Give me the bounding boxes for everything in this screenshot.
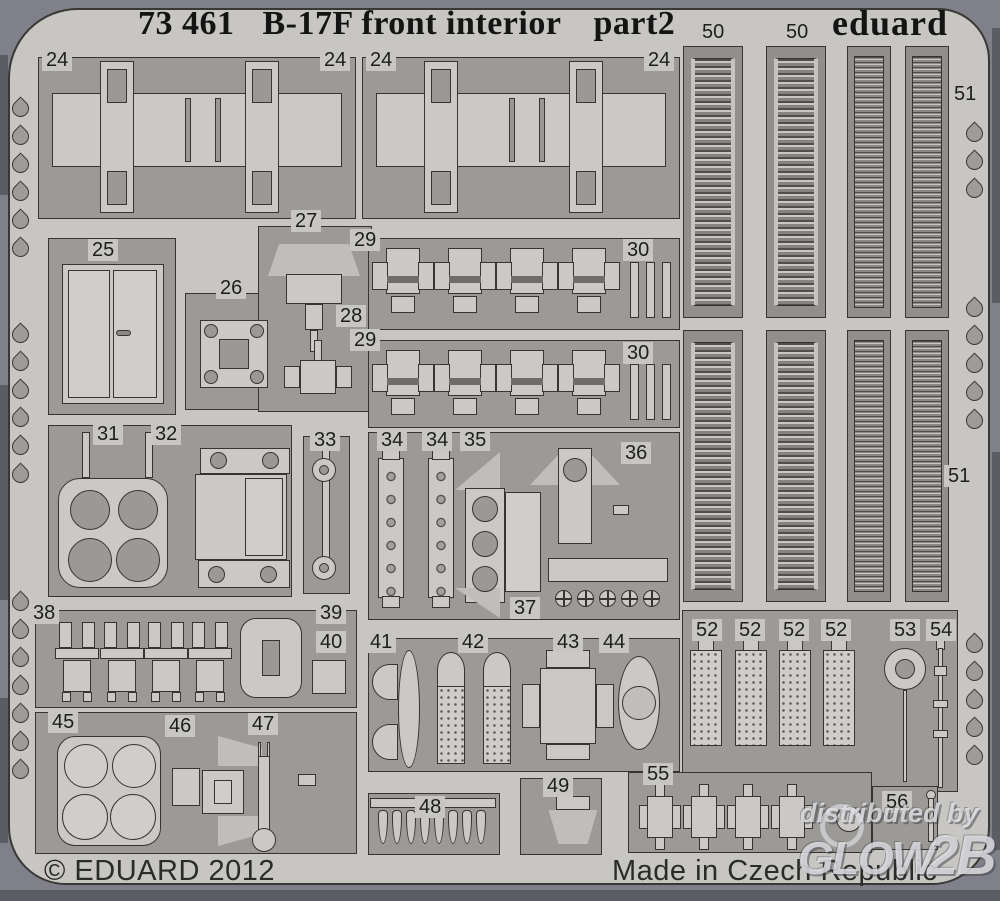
part-label-50: 50: [698, 21, 728, 43]
part-55-bracket: [639, 784, 681, 850]
part-shape: [83, 692, 92, 702]
part-26-corner-hole: [250, 370, 264, 384]
part-30-strip: [662, 364, 671, 420]
part-label-31: 31: [93, 423, 123, 445]
part-label-52: 52: [821, 619, 851, 641]
part-shape: [448, 350, 482, 396]
part-24-buckle-hole: [576, 69, 596, 103]
part-31-hook: [82, 432, 90, 478]
teardrop-cutout: [962, 121, 986, 145]
part-39-slot: [262, 640, 280, 676]
part-label-30: 30: [623, 342, 653, 364]
part-55-bracket: [683, 784, 725, 850]
part-label-40: 40: [316, 631, 346, 653]
part-shape: [434, 262, 450, 290]
part-shape: [716, 805, 725, 829]
scan-edge-bar: [992, 645, 1000, 850]
part-shape: [727, 805, 736, 829]
part-52-walkway: [779, 650, 811, 746]
part-label-43: 43: [553, 631, 583, 653]
part-42-bottle: [437, 686, 465, 764]
part-shape: [743, 837, 753, 850]
teardrop-cutouts-right-3: [966, 636, 983, 765]
part-45-hole: [110, 794, 156, 840]
part-label-32: 32: [151, 423, 181, 445]
teardrop-cutouts-left-1: [12, 100, 29, 257]
part-34-strip: [428, 458, 454, 598]
part-label-26: 26: [216, 277, 246, 299]
teardrop-cutout: [962, 149, 986, 173]
part-shape: [453, 398, 477, 415]
part-shape: [604, 364, 620, 392]
part-label-39: 39: [316, 602, 346, 624]
part-label-24: 24: [644, 49, 674, 71]
teardrop-cutout: [8, 208, 32, 232]
part-29-seat: [372, 350, 434, 422]
part-31-hole: [68, 538, 112, 582]
part-37-knob: [643, 590, 660, 607]
part-31-hole: [116, 538, 160, 582]
part-55-bracket: [727, 784, 769, 850]
teardrop-cutout: [962, 744, 986, 768]
part-50-belt: [774, 58, 818, 306]
part-33-ring-hole: [319, 465, 329, 475]
part-24-buckle-hole: [107, 171, 127, 205]
teardrop-cutout: [962, 296, 986, 320]
part-shape: [573, 378, 605, 385]
part-label-24: 24: [320, 49, 350, 71]
part-shape: [418, 262, 434, 290]
part-shape: [577, 296, 601, 313]
part-label-29: 29: [350, 329, 380, 351]
teardrop-cutouts-left-3: [12, 594, 29, 779]
part-label-46: 46: [165, 715, 195, 737]
part-24-buckle-hole: [431, 69, 451, 103]
part-37-knob: [577, 590, 594, 607]
part-label-24: 24: [42, 49, 72, 71]
part-label-47: 47: [248, 713, 278, 735]
part-label-33: 33: [310, 429, 340, 451]
teardrop-cutout: [8, 96, 32, 120]
part-label-54: 54: [926, 619, 956, 641]
part-29-seat: [434, 350, 496, 422]
part-25-door-handle: [116, 330, 131, 336]
part-label-45: 45: [48, 711, 78, 733]
part-shape: [391, 296, 415, 313]
teardrop-cutout: [8, 674, 32, 698]
part-shape: [216, 692, 225, 702]
part-shape: [148, 622, 161, 648]
part-52-walkway: [690, 650, 722, 746]
part-35-hole: [472, 566, 498, 592]
part-42-bottle-top: [483, 652, 511, 688]
part-shape: [699, 837, 709, 850]
part-shape: [386, 248, 420, 294]
part-shape: [771, 805, 780, 829]
part-shape: [572, 248, 606, 294]
part-42-bottle: [483, 686, 511, 764]
part-26-corner-hole: [250, 324, 264, 338]
part-label-27: 27: [291, 210, 321, 232]
part-30-strip: [662, 262, 671, 318]
scan-edge-bar: [992, 28, 1000, 303]
part-shape: [100, 648, 144, 659]
part-shape: [639, 805, 648, 829]
part-24-buckle-hole: [252, 69, 272, 103]
part-shape: [496, 262, 512, 290]
part-30-strip: [630, 364, 639, 420]
part-label-44: 44: [599, 631, 629, 653]
teardrop-cutouts-right-2: [966, 300, 983, 429]
teardrop-cutout: [8, 462, 32, 486]
part-shape: [604, 262, 620, 290]
part-24-buckle-hole: [431, 171, 451, 205]
part-shape: [59, 622, 72, 648]
part-32-clamp-hole: [260, 566, 277, 583]
part-shape: [387, 276, 419, 283]
photoetch-sheet-scan: 73 461B-17F front interiorpart2 eduard ©…: [0, 0, 1000, 901]
part-shape: [63, 660, 91, 692]
part-28-body: [300, 360, 336, 394]
teardrop-cutouts-left-2: [12, 326, 29, 483]
part-shape: [172, 692, 181, 702]
part-45-hole: [112, 744, 156, 788]
part-shape: [192, 622, 205, 648]
part-label-52: 52: [779, 619, 809, 641]
teardrop-cutout: [962, 380, 986, 404]
part-shape: [372, 364, 388, 392]
part-shape: [511, 378, 543, 385]
part-51-belt: [912, 340, 942, 592]
part-shape: [572, 350, 606, 396]
part-52-walkway: [735, 650, 767, 746]
part-shape: [391, 398, 415, 415]
part-shape: [62, 692, 71, 702]
part-label-34: 34: [422, 429, 452, 451]
part-28-stem: [314, 340, 322, 362]
part-24-slit: [539, 98, 545, 162]
part-label-55: 55: [643, 763, 673, 785]
teardrop-cutout: [962, 177, 986, 201]
scan-edge-bar: [0, 698, 8, 843]
part-label-28: 28: [336, 305, 366, 327]
part-label-36: 36: [621, 442, 651, 464]
part-44-hole: [622, 686, 656, 720]
part-43-flap: [546, 744, 590, 760]
part-label-51: 51: [950, 83, 980, 105]
part-29-seat: [496, 350, 558, 422]
part-43-body: [540, 668, 596, 744]
part-28-side: [284, 366, 300, 388]
part-36-fitting: [613, 505, 629, 515]
part-shape: [672, 805, 681, 829]
teardrop-cutout: [8, 646, 32, 670]
part-29-seat: [558, 248, 620, 320]
part-shape: [510, 248, 544, 294]
sheet-title: 73 461B-17F front interiorpart2: [138, 5, 675, 43]
teardrop-cutout: [8, 730, 32, 754]
part-shape: [171, 622, 184, 648]
teardrop-cutout: [8, 350, 32, 374]
part-24-slit: [215, 98, 221, 162]
part-43-flap: [596, 684, 614, 728]
part-25-door-leaf: [68, 270, 110, 398]
part-37-knob: [599, 590, 616, 607]
part-shape: [127, 622, 140, 648]
part-24-buckle-hole: [576, 171, 596, 205]
part-38-harness: [144, 620, 188, 704]
part-label-41: 41: [366, 631, 396, 653]
part-24-buckle-hole: [107, 69, 127, 103]
part-shape: [691, 796, 717, 838]
part-shape: [144, 648, 188, 659]
part-54-fitting: [933, 700, 948, 708]
part-56-pin: [928, 798, 934, 842]
part-51-belt: [912, 56, 942, 308]
part-54-fitting: [933, 730, 948, 738]
part-24-buckle-hole: [252, 171, 272, 205]
part-53-stem: [903, 690, 907, 782]
part-label-29: 29: [350, 229, 380, 251]
teardrop-cutout: [8, 322, 32, 346]
part-27-wings: [268, 244, 360, 276]
part-label-49: 49: [543, 775, 573, 797]
part-shape: [760, 805, 769, 829]
part-29-seat: [558, 350, 620, 422]
part-50-belt: [691, 58, 735, 306]
part-29-seat: [496, 248, 558, 320]
part-55-ring: [836, 806, 862, 832]
part-label-25: 25: [88, 239, 118, 261]
part-47-ball: [252, 828, 276, 852]
part-label-30: 30: [623, 239, 653, 261]
sheet-part: part2: [593, 5, 675, 42]
part-label-24: 24: [366, 49, 396, 71]
part-shape: [542, 262, 558, 290]
brand-logo: eduard: [832, 2, 948, 44]
part-label-52: 52: [692, 619, 722, 641]
part-shape: [735, 796, 761, 838]
part-shape: [496, 364, 512, 392]
part-shape: [542, 364, 558, 392]
part-24-shape: [376, 93, 666, 167]
teardrop-cutout: [962, 660, 986, 684]
part-28-side: [336, 366, 352, 388]
part-shape: [515, 296, 539, 313]
teardrop-cutout: [962, 352, 986, 376]
part-35-panel: [505, 492, 541, 592]
part-32-back-panel: [245, 478, 283, 556]
teardrop-cutout: [8, 758, 32, 782]
part-shape: [804, 805, 813, 829]
part-36-hole: [563, 458, 587, 482]
scan-edge-bar: [0, 385, 8, 600]
part-shape: [82, 622, 95, 648]
part-55-bracket: [771, 784, 813, 850]
part-37-knob: [621, 590, 638, 607]
teardrop-cutout: [962, 632, 986, 656]
part-42-bottle-top: [437, 652, 465, 688]
part-26-frame-hole: [219, 339, 249, 369]
part-47-fitting: [298, 774, 316, 786]
part-50-belt: [691, 342, 735, 590]
teardrop-cutout: [962, 324, 986, 348]
part-shape: [787, 837, 797, 850]
part-43-flap: [522, 684, 540, 728]
part-label-52: 52: [735, 619, 765, 641]
teardrop-cutout: [8, 124, 32, 148]
part-label-38: 38: [29, 602, 59, 624]
part-30-strip: [646, 262, 655, 318]
part-41-lens: [398, 650, 420, 768]
part-shape: [449, 276, 481, 283]
part-24-slit: [185, 98, 191, 162]
part-shape: [480, 262, 496, 290]
teardrop-cutouts-right-1: [966, 125, 983, 198]
part-shape: [215, 622, 228, 648]
part-shape: [558, 262, 574, 290]
teardrop-cutout: [962, 408, 986, 432]
copyright-text: © EDUARD 2012: [44, 855, 275, 888]
part-34-strip: [378, 458, 404, 598]
part-24-shape: [52, 93, 342, 167]
part-46-slot: [214, 780, 232, 804]
part-46-arm: [172, 768, 200, 806]
part-40-plate: [312, 660, 346, 694]
part-shape: [577, 398, 601, 415]
part-54-fitting: [934, 666, 947, 676]
part-shape: [372, 262, 388, 290]
part-31-hole: [70, 490, 110, 530]
part-shape: [418, 364, 434, 392]
part-49-tab: [556, 796, 590, 810]
part-shape: [104, 622, 117, 648]
part-shape: [151, 692, 160, 702]
part-shape: [448, 248, 482, 294]
part-shape: [386, 350, 420, 396]
part-53-flange-hole: [895, 659, 915, 679]
part-29-seat: [434, 248, 496, 320]
part-shape: [647, 796, 673, 838]
part-29-seat: [372, 248, 434, 320]
part-31-hole: [118, 490, 158, 530]
part-38-harness: [188, 620, 232, 704]
part-35-hole: [472, 531, 498, 557]
part-shape: [453, 296, 477, 313]
part-shape: [196, 660, 224, 692]
part-shape: [558, 364, 574, 392]
part-24-slit: [509, 98, 515, 162]
title-text: B-17F front interior: [263, 5, 562, 42]
part-label-35: 35: [460, 429, 490, 451]
teardrop-cutout: [8, 180, 32, 204]
part-label-37: 37: [510, 597, 540, 619]
made-in-text: Made in Czech Republic: [612, 855, 937, 888]
part-shape: [480, 364, 496, 392]
part-shape: [434, 364, 450, 392]
part-30-strip: [630, 262, 639, 318]
part-38-harness: [100, 620, 144, 704]
teardrop-cutout: [8, 236, 32, 260]
part-shape: [107, 692, 116, 702]
part-shape: [655, 837, 665, 850]
part-shape: [511, 276, 543, 283]
part-label-53: 53: [890, 619, 920, 641]
teardrop-cutout: [8, 152, 32, 176]
part-shape: [108, 660, 136, 692]
part-label-34: 34: [377, 429, 407, 451]
part-35-hole: [472, 496, 498, 522]
part-shape: [449, 378, 481, 385]
part-label-42: 42: [458, 631, 488, 653]
part-shape: [152, 660, 180, 692]
teardrop-cutout: [962, 716, 986, 740]
part-50-belt: [774, 342, 818, 590]
teardrop-cutout: [8, 434, 32, 458]
part-51-belt: [854, 340, 884, 592]
part-30-strip: [646, 364, 655, 420]
part-33-ring-hole: [319, 563, 329, 573]
teardrop-cutout: [8, 406, 32, 430]
part-shape: [515, 398, 539, 415]
part-37-bar: [548, 558, 668, 582]
teardrop-cutout: [962, 688, 986, 712]
part-34-tab: [382, 596, 400, 608]
scan-edge-bar: [0, 55, 8, 195]
part-shape: [683, 805, 692, 829]
part-26-corner-hole: [204, 324, 218, 338]
part-label-48: 48: [415, 796, 445, 818]
part-shape: [387, 378, 419, 385]
part-34-tab: [432, 596, 450, 608]
part-45-hole: [62, 794, 108, 840]
catalog-number: 73 461: [138, 5, 235, 42]
part-shape: [195, 692, 204, 702]
part-shape: [55, 648, 99, 659]
teardrop-cutout: [8, 702, 32, 726]
part-32-clamp-hole: [210, 452, 227, 469]
part-32-clamp-hole: [208, 566, 225, 583]
scan-edge-bar: [0, 890, 1000, 901]
part-shape: [573, 276, 605, 283]
part-47-rod: [258, 756, 270, 830]
part-38-harness: [55, 620, 99, 704]
part-37-knob: [555, 590, 572, 607]
part-27-body: [286, 274, 342, 304]
part-shape: [128, 692, 137, 702]
part-26-corner-hole: [204, 370, 218, 384]
teardrop-cutout: [8, 378, 32, 402]
part-label-51: 51: [944, 465, 974, 487]
part-51-belt: [854, 56, 884, 308]
part-shape: [510, 350, 544, 396]
part-52-walkway: [823, 650, 855, 746]
part-label-56: 56: [882, 791, 912, 813]
part-label-50: 50: [782, 21, 812, 43]
part-27-neck: [305, 304, 323, 330]
part-32-clamp-hole: [262, 452, 279, 469]
part-45-hole: [64, 744, 108, 788]
part-shape: [188, 648, 232, 659]
part-shape: [779, 796, 805, 838]
